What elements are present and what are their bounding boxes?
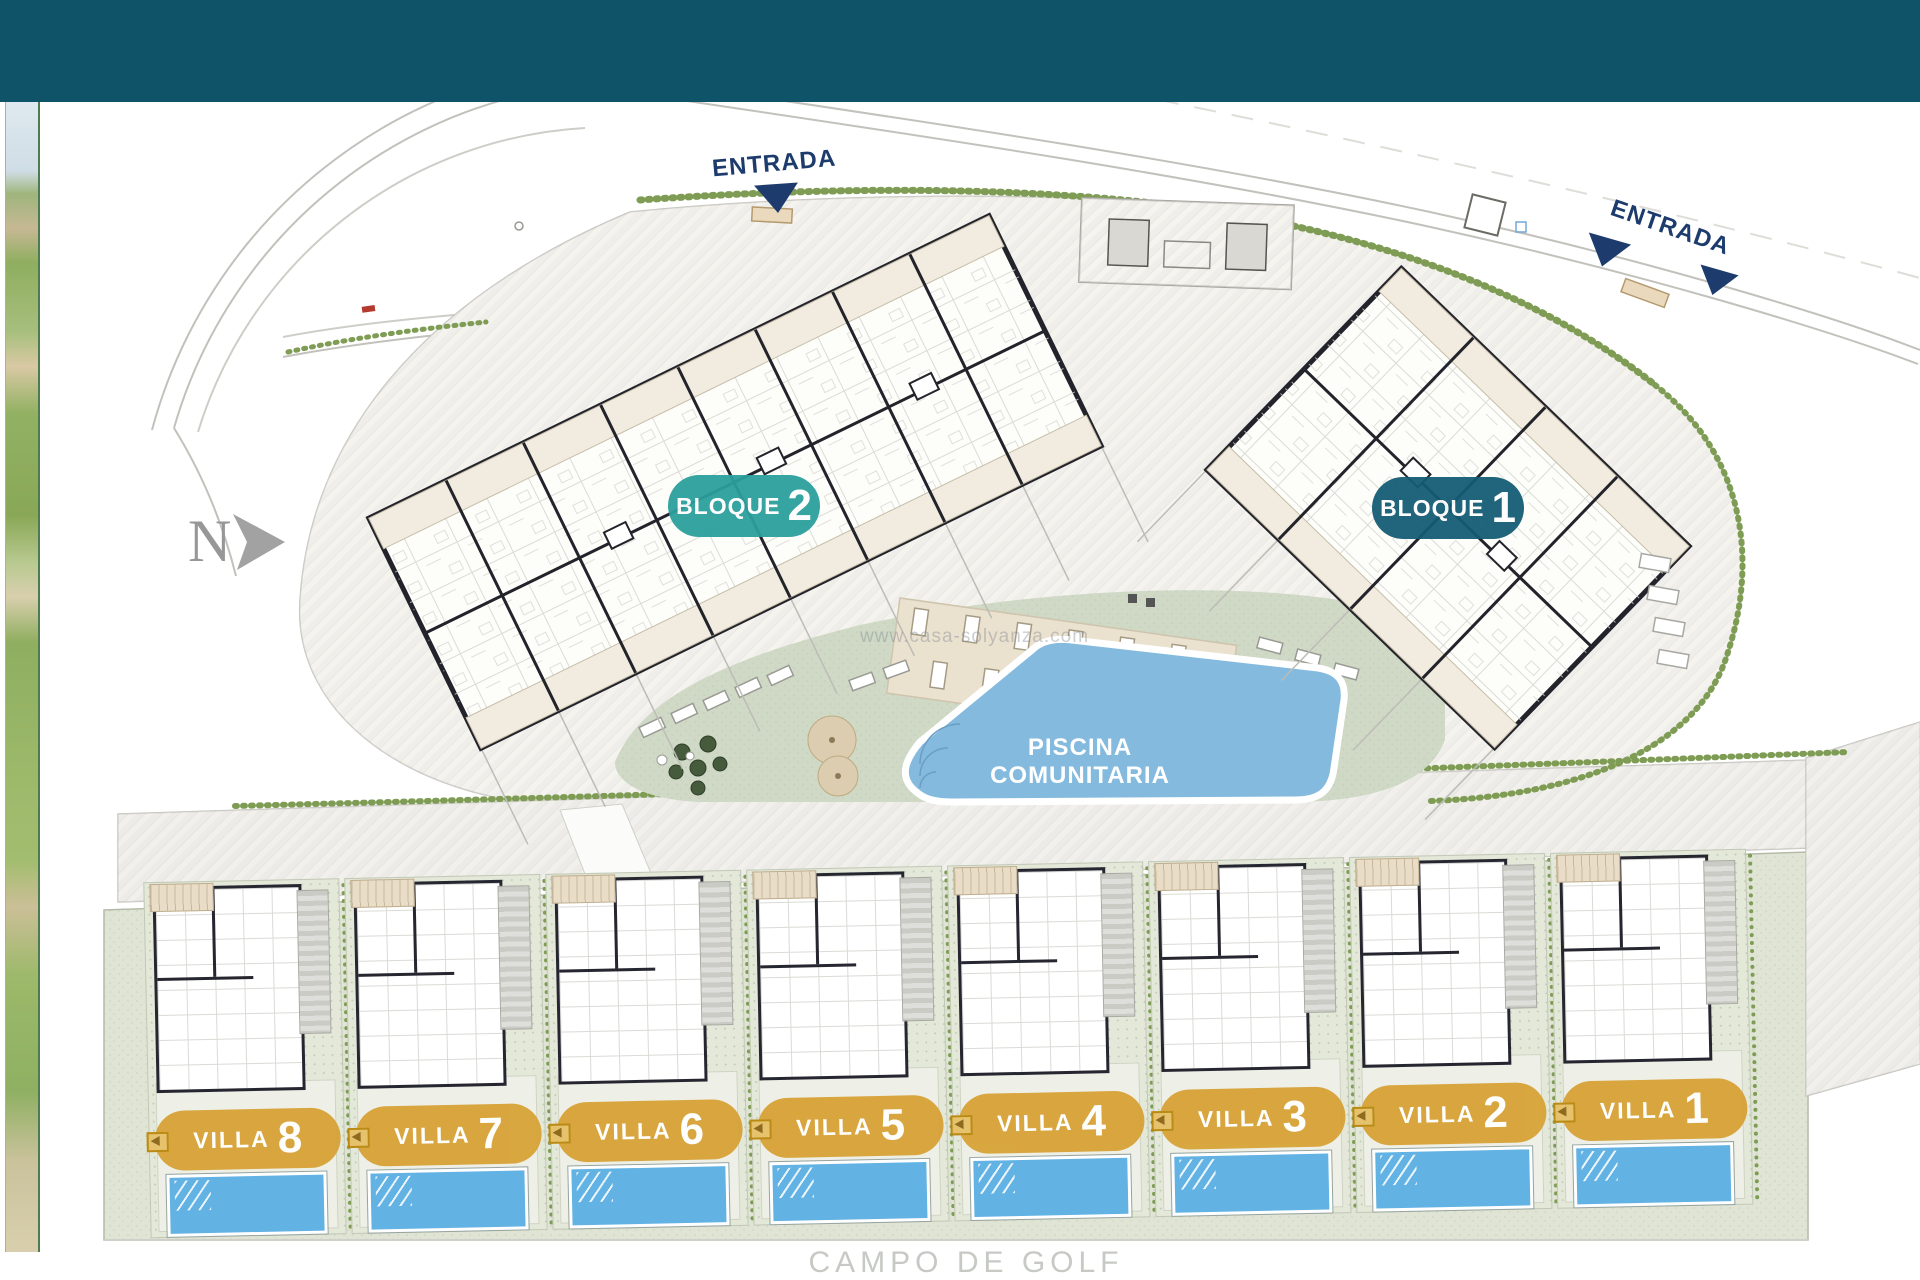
villa-pool-steps [576,1172,613,1203]
villa-driveway [1301,868,1336,1013]
villa-label: VILLA [997,1108,1074,1137]
villa-plot: VILLA 5 [746,866,949,1226]
villa-rooms [956,867,1109,1076]
villa-label: VILLA [595,1117,672,1146]
villa-driveway [698,881,733,1026]
villa-badge[interactable]: VILLA 1 [1561,1078,1748,1142]
villa-floorplan [956,867,1136,1077]
villa-number: 7 [478,1112,503,1157]
villa-plot: VILLA 8 [143,878,346,1238]
villa-gate-icon [1553,1102,1575,1122]
villa-plot: VILLA 1 [1550,849,1753,1209]
villa-rooms [1358,859,1511,1068]
villa-driveway [1502,864,1537,1009]
villa-rooms [1157,863,1310,1072]
villa-number: 4 [1081,1099,1106,1144]
villa-terrace [1154,862,1219,891]
villa-terrace [953,866,1018,895]
villa-pool [1171,1150,1332,1215]
villa-pool [568,1163,729,1228]
villa-terrace [350,879,415,908]
villa-plot: VILLA 2 [1349,853,1552,1213]
villa-pool [1573,1142,1734,1207]
site-plan-page: ENTRADA ENTRADA N www.casa-solyanza.com … [0,0,1920,1280]
villa-floorplan [755,871,935,1081]
villa-gate-icon [147,1132,169,1152]
villa-pool [367,1167,528,1232]
villa-plot: VILLA 3 [1148,857,1351,1217]
villa-number: 8 [277,1116,302,1161]
villa-plot: VILLA 6 [545,870,748,1230]
villa-gate-icon [548,1123,570,1143]
villa-pool [1372,1146,1533,1211]
villa-gate-icon [1352,1107,1374,1127]
villa-pool [166,1172,327,1237]
villa-badge[interactable]: VILLA 5 [757,1095,944,1159]
villa-label: VILLA [1198,1104,1275,1133]
villa-floorplan [353,879,533,1089]
villa-rooms [353,880,506,1089]
header-bar [0,0,1920,102]
villa-rooms [554,876,707,1085]
villa-terrace [1556,853,1621,882]
villa-gate-icon [1151,1111,1173,1131]
villa-plot: VILLA 7 [344,874,547,1234]
villa-badge[interactable]: VILLA 2 [1360,1082,1547,1146]
villa-floorplan [1559,854,1739,1064]
villa-label: VILLA [796,1113,873,1142]
villa-plot: VILLA 4 [947,861,1150,1221]
villa-driveway [296,889,331,1034]
villa-gate-icon [749,1119,771,1139]
villa-terrace [1355,858,1420,887]
villa-gate-icon [950,1115,972,1135]
villa-floorplan [1157,862,1337,1072]
villa-badge[interactable]: VILLA 8 [154,1107,341,1171]
villa-number: 2 [1483,1091,1508,1136]
villa-gate-icon [347,1128,369,1148]
villa-terrace [752,870,817,899]
villa-badge[interactable]: VILLA 4 [958,1090,1145,1154]
villas-row: VILLA 8 VILLA 7 [0,0,1920,1280]
villa-label: VILLA [394,1121,471,1150]
villa-terrace [551,874,616,903]
villa-rooms [152,884,305,1093]
villa-badge[interactable]: VILLA 6 [556,1099,743,1163]
villa-pool-steps [1380,1155,1417,1186]
villa-pool [769,1159,930,1224]
villa-label: VILLA [1600,1096,1677,1125]
villa-label: VILLA [193,1125,270,1154]
villa-rooms [1559,855,1712,1064]
villa-badge[interactable]: VILLA 7 [355,1103,542,1167]
villa-driveway [899,877,934,1022]
villa-pool-steps [978,1163,1015,1194]
villa-pool-steps [175,1180,212,1211]
villa-number: 5 [880,1103,905,1148]
villa-rooms [755,871,908,1080]
villa-pool-steps [1581,1151,1618,1182]
villa-pool-steps [777,1167,814,1198]
golf-photo-strip [5,102,40,1252]
villa-floorplan [1358,858,1538,1068]
villa-floorplan [152,883,332,1093]
villa-badge[interactable]: VILLA 3 [1159,1086,1346,1150]
villa-pool [970,1155,1131,1220]
golf-course-label: CAMPO DE GOLF [766,1246,1166,1280]
villa-pool-steps [375,1176,412,1207]
villa-driveway [497,885,532,1030]
villa-number: 1 [1684,1087,1709,1132]
villa-driveway [1703,860,1738,1005]
villa-number: 3 [1282,1095,1307,1140]
villa-pool-steps [1179,1159,1216,1190]
villa-terrace [149,883,214,912]
villa-label: VILLA [1399,1100,1476,1129]
villa-floorplan [554,875,734,1085]
villa-number: 6 [679,1108,704,1153]
villa-driveway [1100,873,1135,1018]
